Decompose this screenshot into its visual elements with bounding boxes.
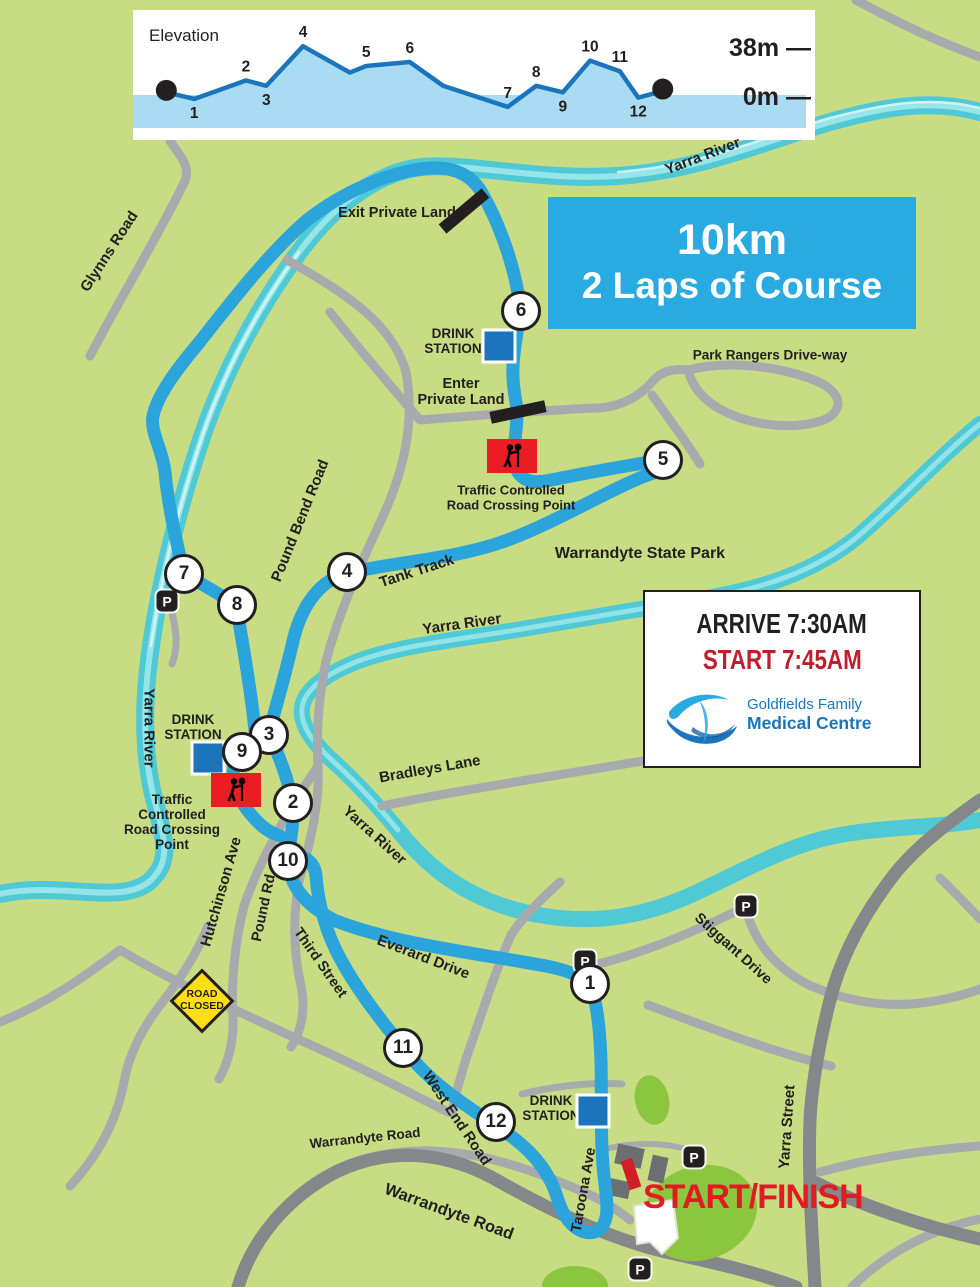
- svg-text:5: 5: [362, 44, 371, 61]
- svg-text:1: 1: [190, 105, 199, 122]
- checkpoint-5: 5: [643, 440, 683, 480]
- course-map-poster: 123456789101112 Elevation 38m — 0m — 10k…: [0, 0, 980, 1287]
- checkpoint-9: 9: [222, 732, 262, 772]
- label-park-rangers-driveway: Park Rangers Drive-way: [693, 347, 848, 362]
- elevation-axis-max-label: 38m —: [693, 34, 811, 63]
- label-drink-station-north: DRINK STATION: [424, 326, 481, 356]
- label-drink-station-south: DRINK STATION: [522, 1093, 579, 1123]
- elevation-chart-title: Elevation: [149, 26, 219, 46]
- svg-text:10: 10: [581, 39, 598, 56]
- start-time: START 7:45AM: [645, 644, 919, 676]
- checkpoint-2: 2: [273, 783, 313, 823]
- label-traffic-crossing-north: Traffic Controlled Road Crossing Point: [447, 483, 576, 512]
- medical-centre-name: Goldfields Family Medical Centre: [747, 696, 871, 733]
- svg-text:8: 8: [532, 64, 541, 81]
- checkpoint-4: 4: [327, 552, 367, 592]
- start-finish-label: START/FINISH: [643, 1178, 863, 1217]
- checkpoint-6: 6: [501, 291, 541, 331]
- flagger-icon: [221, 777, 251, 803]
- traffic-crossing-sign-north: [487, 439, 537, 473]
- label-enter-private-land: Enter Private Land: [417, 376, 504, 408]
- elevation-chart: 123456789101112 Elevation 38m — 0m —: [133, 10, 815, 140]
- medical-centre-line2: Medical Centre: [747, 713, 871, 733]
- svg-text:6: 6: [405, 40, 414, 57]
- course-title-box: 10km 2 Laps of Course: [548, 197, 916, 329]
- event-info-box: ARRIVE 7:30AM START 7:45AM Goldfields Fa…: [643, 590, 921, 768]
- svg-text:9: 9: [558, 98, 567, 115]
- parking-icon-stiggant: P: [736, 896, 757, 917]
- checkpoint-7: 7: [164, 554, 204, 594]
- drink-station-icon-west: [191, 741, 226, 776]
- checkpoint-10: 10: [268, 841, 308, 881]
- label-traffic-crossing-west: Traffic Controlled Road Crossing Point: [124, 792, 220, 852]
- svg-text:3: 3: [262, 92, 271, 109]
- parking-icon-start-north: P: [684, 1147, 705, 1168]
- label-warrandyte-state-park: Warrandyte State Park: [555, 545, 725, 563]
- label-exit-private-land: Exit Private Land: [338, 205, 456, 221]
- medical-centre-logo-icon: [663, 686, 743, 756]
- elevation-profile-svg: 123456789101112: [133, 10, 815, 140]
- road-closed-text: ROAD CLOSED: [182, 981, 222, 1021]
- course-laps: 2 Laps of Course: [582, 264, 882, 308]
- elevation-axis-zero-label: 0m —: [693, 83, 811, 112]
- flagger-icon: [497, 443, 527, 469]
- checkpoint-12: 12: [476, 1102, 516, 1142]
- drink-station-icon-north: [482, 329, 517, 364]
- course-distance: 10km: [677, 217, 787, 264]
- drink-station-icon-south: [576, 1094, 611, 1129]
- label-drink-station-west: DRINK STATION: [164, 712, 221, 742]
- label-yarra-river-left: Yarra River: [140, 688, 157, 767]
- parking-icon-pound-bend: P: [157, 591, 178, 612]
- checkpoint-11: 11: [383, 1028, 423, 1068]
- svg-text:2: 2: [242, 58, 251, 75]
- parking-icon-start-south: P: [630, 1259, 651, 1280]
- checkpoint-1: 1: [570, 964, 610, 1004]
- svg-text:12: 12: [630, 104, 647, 121]
- checkpoint-8: 8: [217, 585, 257, 625]
- svg-text:4: 4: [299, 24, 308, 41]
- svg-text:7: 7: [503, 85, 512, 102]
- svg-text:11: 11: [612, 49, 629, 66]
- medical-centre-line1: Goldfields Family: [747, 696, 871, 713]
- arrive-time: ARRIVE 7:30AM: [645, 608, 919, 640]
